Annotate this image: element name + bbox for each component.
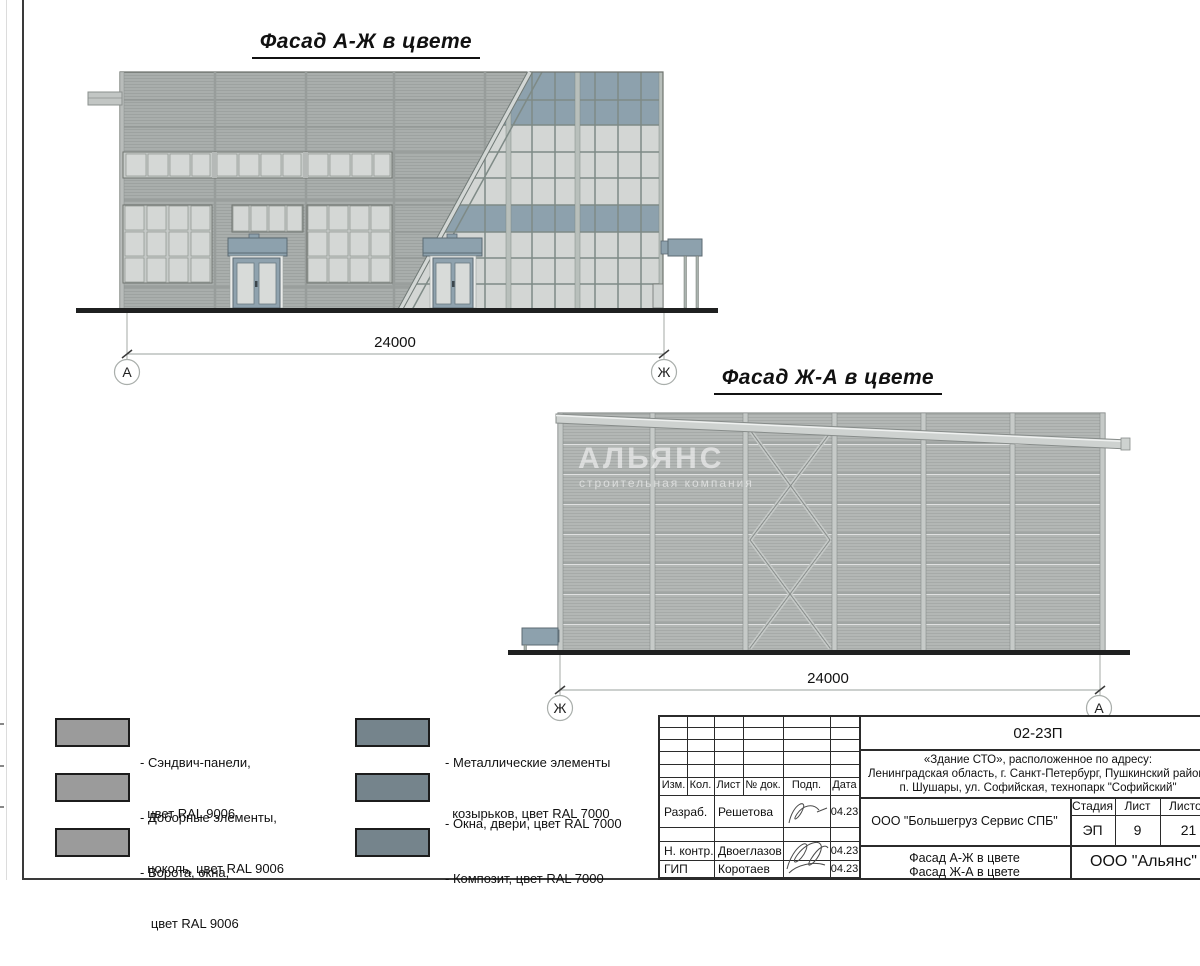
tb-header-podp: Подп. (783, 779, 830, 791)
tb-role-nkontr: Н. контр. (664, 844, 714, 858)
tb-company: ООО "Большегруз Сервис СПБ" (859, 814, 1070, 828)
tb-name-nkontr: Двоеглазов (718, 844, 782, 858)
tb-header-ndok: № док. (743, 779, 783, 791)
tb-header-data: Дата (830, 779, 859, 791)
tb-sheet-name-line2: Фасад Ж-А в цвете (859, 865, 1070, 879)
sheet-frame-left (22, 0, 24, 880)
tb-header-list: Лист (714, 779, 743, 791)
legend-label: - Ворота, окна, цвет RAL 9006 (140, 830, 239, 966)
dim-label-ja: 24000 (807, 670, 849, 687)
legend-swatch-sandwich (55, 718, 130, 747)
tb-name-gip: Коротаев (718, 862, 770, 876)
tb-object-line1: «Здание СТО», расположенное по адресу: (859, 754, 1200, 766)
tb-sheets-value: 21 (1160, 822, 1200, 838)
dimension-aj: 24000 А Ж (115, 313, 677, 385)
roof-edge-tab (88, 92, 122, 105)
tb-header-izm: Изм. (660, 779, 687, 791)
legend-label-line: - Доборные элементы, (140, 809, 284, 826)
tb-stage-value: ЭП (1070, 822, 1115, 838)
tb-org: ООО "Альянс" (1070, 853, 1200, 871)
title-block: Изм. Кол. Лист № док. Подп. Дата Разраб.… (658, 715, 1200, 880)
ground-line-ja (508, 650, 1130, 655)
axis-letter-zh: Ж (658, 364, 671, 380)
ground-line-aj (76, 308, 718, 313)
legend-swatch-composite (355, 828, 430, 857)
tb-sheet-label: Лист (1115, 799, 1160, 813)
facade-aj-title: Фасад А-Ж в цвете (252, 30, 480, 59)
axis-letter-a: А (122, 364, 132, 380)
upper-window-band (123, 152, 392, 178)
watermark-subtitle: строительная компания (579, 476, 754, 490)
entrance-door-1 (228, 234, 287, 308)
side-canopy-left (522, 628, 559, 653)
watermark-name: АЛЬЯНС (578, 442, 724, 475)
sheet-margin-line (6, 0, 7, 880)
facade-ja-title: Фасад Ж-А в цвете (714, 366, 942, 395)
legend-swatch-gates (55, 828, 130, 857)
tb-role-razrab: Разраб. (664, 805, 707, 819)
legend-swatch-metal (355, 718, 430, 747)
legend-label-line: - Окна, двери, цвет RAL 7000 (445, 815, 622, 832)
legend-label-line: - Ворота, окна, (140, 864, 239, 881)
legend-label-line: цвет RAL 9006 (140, 915, 239, 932)
facade-aj-elevation: 24000 А Ж (76, 72, 718, 385)
tb-doc-number: 02-23П (859, 725, 1200, 742)
legend-label: - Композит, цвет RAL 7000 (445, 836, 604, 921)
tb-role-gip: ГИП (664, 862, 688, 876)
tb-sheet-name-line1: Фасад А-Ж в цвете (859, 851, 1070, 865)
signatures (783, 795, 830, 878)
tb-sheet-value: 9 (1115, 822, 1160, 838)
tb-object-line3: п. Шушары, ул. Софийская, технопарк "Соф… (859, 782, 1200, 794)
tb-date-gip: 04.23 (830, 863, 859, 875)
legend-swatch-windows (355, 773, 430, 802)
tb-sheets-label: Листов (1160, 799, 1200, 813)
dim-label-aj: 24000 (374, 334, 416, 351)
drawing-sheet: { "titles": { "facade_aj": "Фасад А-Ж в … (0, 0, 1200, 900)
legend-label-line: - Композит, цвет RAL 7000 (445, 870, 604, 887)
margin-tick (0, 723, 4, 725)
tb-stage-label: Стадия (1070, 799, 1115, 813)
tb-object-line2: Ленинградская область, г. Санкт-Петербур… (859, 768, 1200, 780)
tb-date-razrab: 04.23 (830, 806, 859, 818)
facade-ja-elevation: АЛЬЯНС строительная компания 24000 Ж А (508, 413, 1130, 721)
entrance-door-2 (423, 234, 482, 308)
tb-name-razrab: Решетова (718, 805, 773, 819)
legend-label-line: - Сэндвич-панели, (140, 754, 251, 771)
tb-header-kol: Кол. (687, 779, 714, 791)
axis-letter-zh2: Ж (554, 700, 567, 716)
legend-swatch-trim (55, 773, 130, 802)
dimension-ja: 24000 Ж А (548, 655, 1112, 721)
axis-letter-a2: А (1094, 700, 1104, 716)
margin-tick (0, 806, 4, 808)
margin-tick (0, 765, 4, 767)
legend-label-line: - Металлические элементы (445, 754, 610, 771)
tb-date-nkontr: 04.23 (830, 845, 859, 857)
